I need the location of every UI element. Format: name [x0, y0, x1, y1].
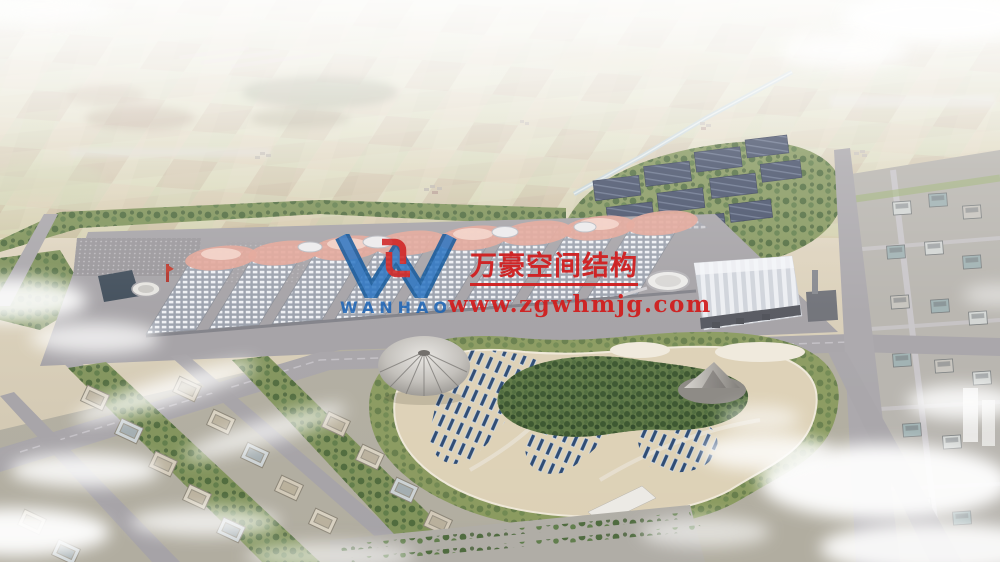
aerial-render: WANHAO 万豪空间结构 www.zgwhmjg.com: [0, 0, 1000, 562]
scene-art: [0, 0, 1000, 562]
